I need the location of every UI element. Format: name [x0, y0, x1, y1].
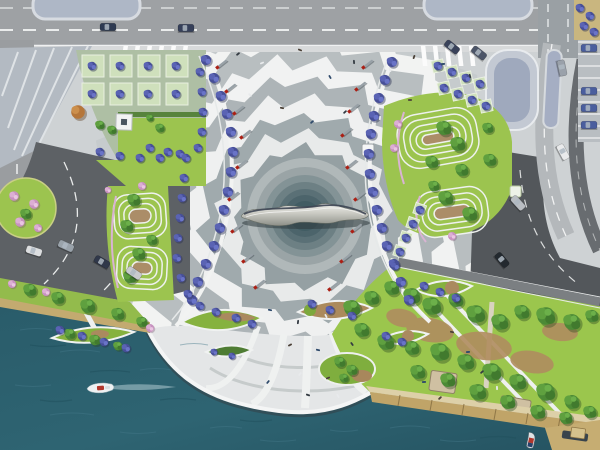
pedestrian [466, 351, 470, 353]
pedestrian [353, 60, 355, 64]
car [100, 23, 117, 32]
parked-car [581, 87, 598, 96]
traffic-island-core [494, 58, 530, 122]
pier-kiosk [570, 427, 585, 439]
pedestrian [496, 386, 498, 390]
pedestrian [441, 63, 445, 65]
pedestrian [408, 99, 412, 101]
median-island-right [424, 0, 532, 19]
pedestrian [422, 381, 426, 383]
parked-car [581, 44, 598, 53]
plaza-monument [116, 114, 133, 131]
parked-car [581, 121, 598, 130]
car [178, 24, 195, 33]
site-plan-rendering: Aerial masterplan rendering: waterfront … [0, 0, 600, 450]
masterplan-canvas [0, 0, 600, 450]
round-lawn-island [0, 178, 56, 238]
median-island-left [33, 0, 140, 19]
parked-car [581, 104, 598, 113]
